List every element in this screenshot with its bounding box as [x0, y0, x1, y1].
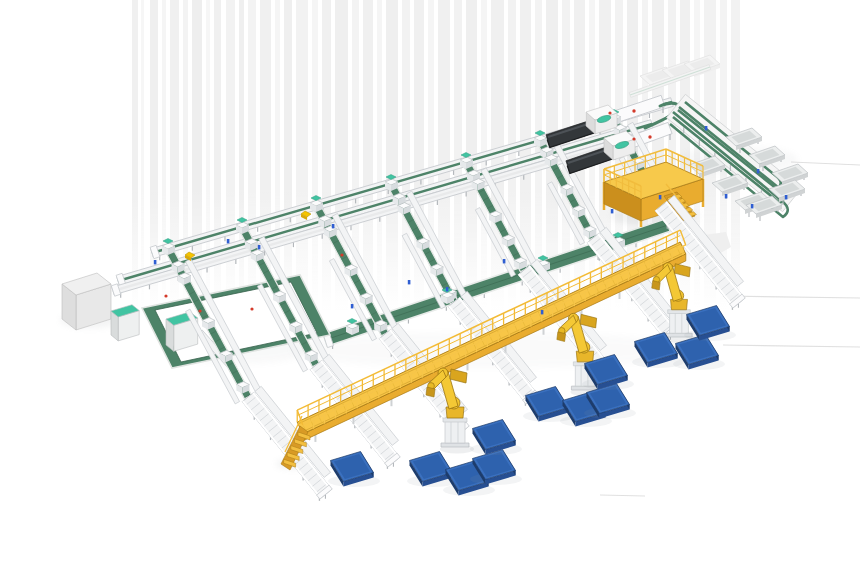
sensor-marker: [446, 287, 449, 291]
sensor-marker: [154, 260, 157, 264]
sensor-marker: [227, 239, 230, 243]
sensor-marker: [725, 194, 728, 198]
scanner-cabinet: [62, 273, 111, 330]
sensor-marker: [541, 310, 544, 314]
palletizer-robot: [426, 368, 474, 454]
pallet: [328, 452, 380, 488]
sensor-marker: [751, 204, 754, 208]
sensor-marker: [611, 209, 614, 213]
indicator-light: [632, 137, 635, 140]
sensor-marker: [659, 195, 662, 199]
indicator-light: [608, 111, 611, 114]
sensor-marker: [351, 304, 354, 308]
tray-conveyor: [712, 174, 748, 199]
pallet: [470, 420, 522, 456]
sensor-marker: [408, 280, 411, 284]
indicator-light: [164, 294, 167, 297]
indicator-light: [340, 253, 343, 256]
pallet: [684, 306, 736, 342]
sensor-marker: [503, 259, 506, 263]
sensor-marker: [785, 195, 788, 199]
indicator-light: [198, 309, 201, 312]
sensor-marker: [705, 126, 708, 130]
sensor-marker: [258, 245, 261, 249]
scene-svg: [0, 0, 860, 580]
sensor-marker: [332, 224, 335, 228]
indicator-light: [250, 307, 253, 310]
sensor-marker: [757, 169, 760, 173]
facility-render: [0, 0, 860, 580]
